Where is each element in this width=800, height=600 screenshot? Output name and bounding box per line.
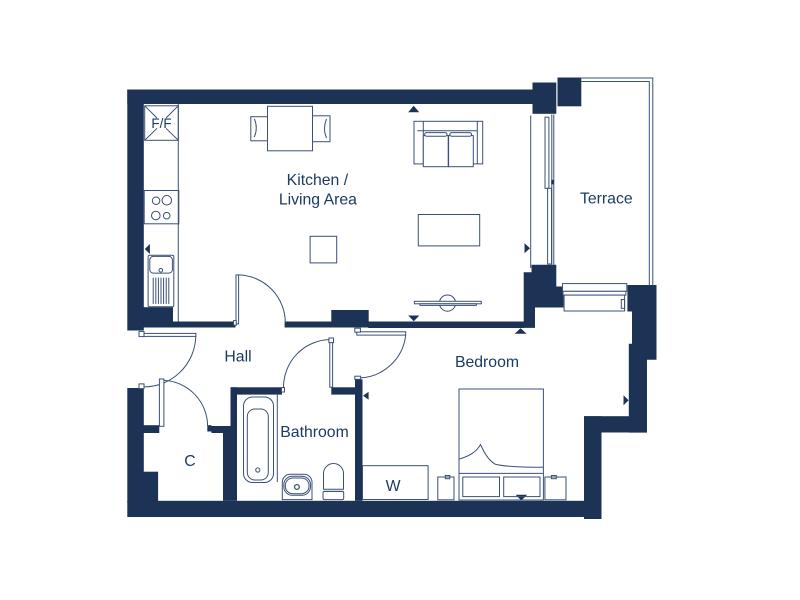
- svg-text:Terrace: Terrace: [580, 190, 633, 207]
- svg-text:W: W: [386, 478, 401, 495]
- svg-text:C: C: [184, 453, 195, 470]
- svg-text:Living Area: Living Area: [279, 191, 357, 208]
- svg-text:Hall: Hall: [224, 349, 251, 366]
- svg-text:Kitchen /: Kitchen /: [287, 172, 349, 189]
- svg-text:Bedroom: Bedroom: [455, 354, 519, 371]
- svg-text:Bathroom: Bathroom: [280, 424, 349, 441]
- svg-text:F/F: F/F: [151, 116, 171, 131]
